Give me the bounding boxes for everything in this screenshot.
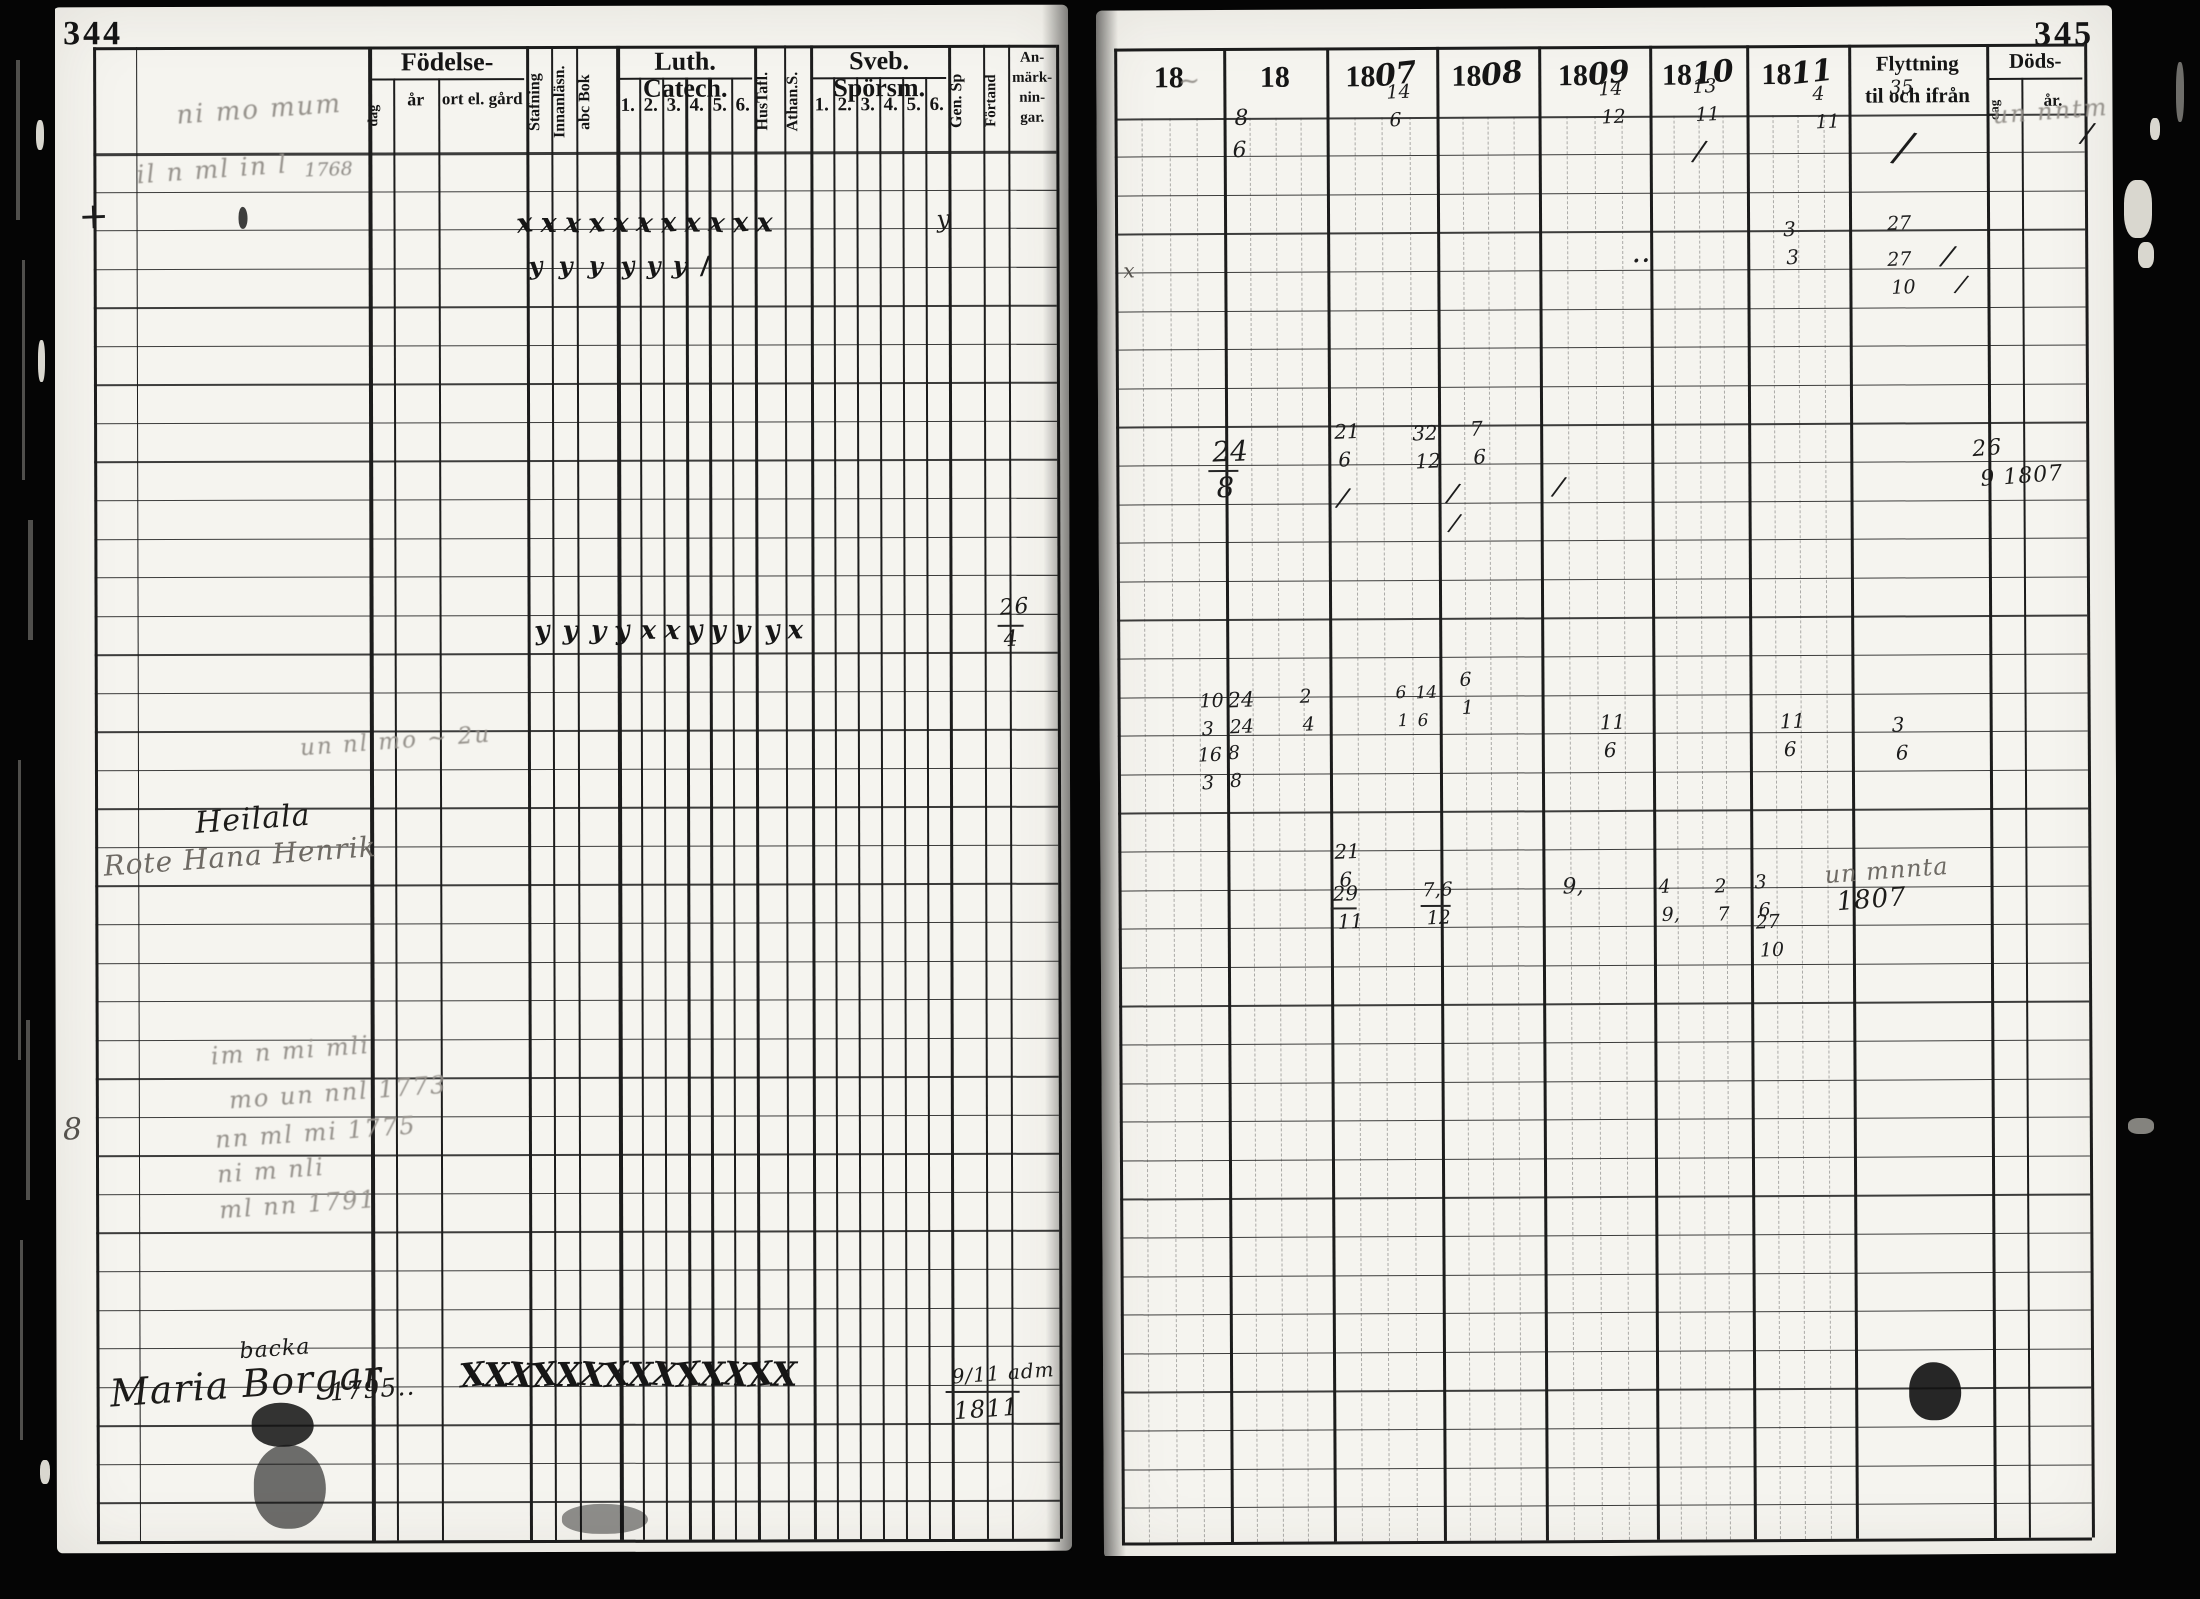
check-mark: x xyxy=(641,618,657,644)
header-col-fortand: Förtand xyxy=(983,51,1008,151)
row-line xyxy=(94,266,1057,270)
check-mark: X xyxy=(746,1356,775,1392)
row-line xyxy=(94,575,1057,579)
year-subcolumn-line xyxy=(1722,115,1730,1539)
header-col-ar: år xyxy=(393,90,438,109)
row-line xyxy=(1120,1232,2090,1238)
header-col-luth-5: 5. xyxy=(708,96,731,116)
row-line xyxy=(1120,1078,2090,1084)
handwritten-mark: 11 xyxy=(1695,105,1720,125)
handwritten-mark: 11 xyxy=(1599,711,1625,732)
row-line xyxy=(1118,692,2088,698)
handwritten-mark: 35 xyxy=(1889,78,1914,98)
row-line xyxy=(96,1076,1059,1080)
header-col-abc-bok: abc Bok xyxy=(576,52,616,152)
row-line xyxy=(95,729,1058,733)
check-mark: x xyxy=(707,209,726,238)
column-line xyxy=(368,46,375,1540)
row-line xyxy=(812,77,946,79)
row-line xyxy=(1119,924,2089,930)
check-mark: x xyxy=(663,617,681,644)
column-line xyxy=(136,47,141,1541)
handwritten-mark: 1807 xyxy=(1836,884,1908,915)
check-mark: y xyxy=(647,254,661,278)
year-header-5: 1809 xyxy=(1538,60,1649,92)
header-flyttning-line2: til och ifrån xyxy=(1848,84,1986,107)
edge-streak xyxy=(22,260,25,480)
handwritten-mark: ni mo mum xyxy=(176,91,343,129)
check-mark: y xyxy=(587,253,603,278)
handwritten-mark: ml nn 1791 xyxy=(218,1187,377,1222)
row-line xyxy=(95,922,1058,926)
column-line xyxy=(833,77,838,1539)
handwritten-mark: 6 xyxy=(1395,685,1407,702)
handwritten-mark: 21 xyxy=(1334,841,1360,862)
year-printed: 18 xyxy=(1558,59,1588,92)
year-header-1: 18 xyxy=(1114,62,1223,94)
year-printed: 18 xyxy=(1761,58,1791,91)
handwritten-mark: y xyxy=(936,207,952,232)
row-line xyxy=(95,652,1058,656)
column-line xyxy=(393,78,398,1540)
row-line xyxy=(1117,615,2087,621)
ink-blot xyxy=(1909,1362,1961,1420)
row-line xyxy=(95,767,1058,771)
handwritten-mark: 27 xyxy=(1887,214,1912,234)
ink-blot xyxy=(562,1504,648,1534)
column-line xyxy=(731,78,736,1540)
year-header-2: 18 xyxy=(1223,61,1326,93)
edge-streak xyxy=(20,1240,23,1440)
book-left-edge xyxy=(0,0,55,1599)
year-subcolumn-line xyxy=(1249,118,1257,1542)
row-line xyxy=(94,498,1057,502)
check-mark: X xyxy=(458,1357,487,1393)
handwritten-mark: / xyxy=(2080,119,2094,148)
year-subcolumn-line xyxy=(1382,117,1390,1541)
row-line xyxy=(94,421,1057,425)
handwritten-mark: / xyxy=(1693,137,1706,166)
row-line xyxy=(1117,576,2087,582)
year-subcolumn-line xyxy=(1772,115,1780,1539)
check-mark: y xyxy=(533,617,551,644)
year-handwritten-suffix: 08 xyxy=(1480,56,1525,92)
row-line xyxy=(1114,43,2084,51)
handwritten-mark: 6 xyxy=(1895,742,1909,762)
row-line xyxy=(97,1500,1060,1504)
check-mark: x xyxy=(541,210,557,237)
row-line xyxy=(1122,1464,2092,1470)
handwritten-mark: x xyxy=(1123,260,1135,280)
handwritten-mark: 6 xyxy=(1338,449,1352,469)
check-mark: x xyxy=(685,210,701,237)
year-printed: 18 xyxy=(1260,61,1290,94)
check-mark: x xyxy=(659,209,678,238)
row-line xyxy=(370,78,524,80)
handwritten-mark: nn ml mi 1775 xyxy=(214,1113,417,1152)
row-line xyxy=(94,536,1057,540)
ink-blot xyxy=(254,1445,326,1529)
check-mark: y xyxy=(711,618,726,644)
check-mark: y xyxy=(671,253,687,278)
handwritten-mark: 14 xyxy=(1415,685,1437,703)
handwritten-mark: 1 xyxy=(1461,698,1474,717)
header-col-luth-1: 1. xyxy=(616,96,639,116)
row-line xyxy=(1120,1194,2090,1200)
handwritten-mark: 8 xyxy=(1234,108,1249,131)
handwritten-mark: 12 xyxy=(1426,908,1451,928)
handwritten-mark: / xyxy=(1449,510,1461,535)
scanned-book-spread: 344 Födelse-Luth. Catech.Sveb. Spörsm.da… xyxy=(0,0,2200,1599)
header-col-hustafl: HusTafl. xyxy=(754,51,784,151)
edge-streak xyxy=(16,60,20,220)
year-subcolumn-line xyxy=(1674,116,1682,1540)
column-line xyxy=(810,45,817,1539)
column-line xyxy=(902,77,907,1539)
year-printed: 18 xyxy=(1451,60,1481,93)
year-subcolumn-line xyxy=(1462,117,1470,1541)
column-line xyxy=(925,77,930,1539)
edge-chip xyxy=(2128,1118,2154,1134)
year-subcolumn-line xyxy=(1513,116,1521,1540)
check-mark: x xyxy=(635,209,654,238)
year-subcolumn-line xyxy=(1823,115,1831,1539)
column-line xyxy=(879,77,884,1539)
row-line xyxy=(1119,1039,2089,1045)
edge-chip xyxy=(2138,242,2154,268)
header-col-dag: dag xyxy=(366,84,395,146)
year-header-4: 1808 xyxy=(1436,60,1538,92)
handwritten-mark: backa xyxy=(239,1336,311,1363)
handwritten-mark: ~ xyxy=(1177,67,1203,95)
column-line xyxy=(856,77,861,1539)
row-line xyxy=(1121,1310,2091,1316)
handwritten-mark: 6 xyxy=(1783,739,1797,759)
handwritten-mark: 3 xyxy=(1783,219,1797,239)
header-col-anmarkningar: gar. xyxy=(1008,111,1056,127)
edge-chip xyxy=(2124,180,2152,238)
handwritten-mark: 24 xyxy=(1227,689,1255,711)
year-subcolumn-line xyxy=(1698,116,1706,1540)
column-line xyxy=(754,45,761,1539)
header-col-sveb-3: 3. xyxy=(856,95,879,115)
handwritten-mark: Rote Hana Henrik xyxy=(103,833,378,881)
check-mark: X xyxy=(772,1357,798,1390)
header-col-luth-2: 2. xyxy=(639,96,662,116)
ink-blot xyxy=(252,1403,314,1447)
year-subcolumn-line xyxy=(1798,115,1806,1539)
edge-chip xyxy=(40,1460,50,1484)
handwritten-mark: / xyxy=(1336,485,1349,512)
handwritten-mark: 32 xyxy=(1412,422,1438,443)
handwritten-mark: 21 xyxy=(1334,421,1360,442)
handwritten-mark: 29 xyxy=(1332,883,1358,904)
handwritten-mark: 3 xyxy=(1202,774,1215,793)
header-col-luth-3: 3. xyxy=(662,96,685,116)
handwritten-mark: 11 xyxy=(1815,112,1840,132)
row-line xyxy=(1115,190,2085,196)
row-line xyxy=(96,1307,1059,1311)
header-col-luth-6: 6. xyxy=(731,95,754,115)
year-subcolumn-line xyxy=(1622,116,1630,1540)
handwritten-mark: .. xyxy=(1631,237,1651,268)
year-subcolumn-line xyxy=(1301,118,1309,1542)
handwritten-mark: 3 xyxy=(1201,720,1214,739)
column-line xyxy=(93,47,100,1541)
row-line xyxy=(97,1423,1060,1427)
handwritten-mark: / xyxy=(1552,474,1565,501)
right-page: 345 181818071808180918101811Flyttningtil… xyxy=(1096,5,2120,1558)
left-page: 344 Födelse-Luth. Catech.Sveb. Spörsm.da… xyxy=(53,5,1072,1554)
year-subcolumn-line xyxy=(1594,116,1602,1540)
handwritten-mark: 12 xyxy=(1415,450,1441,471)
check-mark: X xyxy=(674,1356,703,1392)
header-col-athan-s: Athan.S. xyxy=(784,51,810,151)
handwritten-mark: 6 xyxy=(1473,446,1487,466)
handwritten-mark: 7 xyxy=(1470,418,1484,438)
header-col-innanlasn: Innanläsn. xyxy=(551,52,576,152)
header-col-anmarkningar: An- xyxy=(1008,51,1056,67)
handwritten-mark: ni m nli xyxy=(216,1155,325,1187)
year-subcolumn-line xyxy=(1488,117,1496,1541)
check-mark: x xyxy=(757,209,773,236)
check-mark: y xyxy=(733,617,751,644)
column-line xyxy=(784,45,790,1539)
row-line xyxy=(1121,1271,2091,1277)
edge-streak xyxy=(28,520,33,640)
header-col-ort-el-gard: ort el. gård xyxy=(438,90,526,108)
handwritten-mark: 9, xyxy=(1562,876,1584,899)
column-line xyxy=(576,46,582,1540)
header-col-sveb-4: 4. xyxy=(879,95,902,115)
handwritten-mark: 6 xyxy=(1417,713,1429,730)
row-line xyxy=(1115,113,2085,120)
handwritten-mark: 11 xyxy=(1337,911,1363,932)
handwritten-mark: 2 xyxy=(1714,877,1727,896)
handwritten-mark: 4 xyxy=(1302,715,1315,734)
row-line xyxy=(1119,1001,2089,1007)
handwritten-mark: 1 xyxy=(1397,713,1409,730)
row-line xyxy=(95,883,1058,887)
row-line xyxy=(1116,345,2086,351)
year-subcolumn-line xyxy=(1354,117,1362,1541)
edge-streak xyxy=(26,1020,30,1200)
header-dods: Döds- xyxy=(1986,49,2084,72)
handwritten-mark: 4 xyxy=(1658,877,1671,896)
handwritten-mark: Heilala xyxy=(194,801,311,839)
handwritten-mark: 3 xyxy=(1786,247,1800,267)
row-line xyxy=(96,1269,1059,1273)
column-line xyxy=(983,45,989,1539)
column-line xyxy=(1008,45,1014,1539)
year-header-7: 1811 xyxy=(1746,59,1848,91)
year-subcolumn-line xyxy=(1275,118,1283,1542)
header-col-gen-sp: Gen. Sp xyxy=(948,51,983,151)
row-line xyxy=(93,189,1056,193)
handwritten-mark: 4 xyxy=(1812,85,1825,104)
handwritten-mark: 7 xyxy=(1717,905,1730,924)
column-line xyxy=(948,45,955,1539)
handwritten-mark: 14 xyxy=(1386,83,1411,103)
handwritten-mark: + xyxy=(78,199,110,236)
handwritten-mark: 9 1807 xyxy=(1980,463,2064,491)
check-mark: y xyxy=(686,617,704,644)
row-line xyxy=(95,690,1058,694)
row-line xyxy=(618,78,752,80)
check-mark: X xyxy=(602,1357,631,1393)
header-col-anmarkningar: märk- xyxy=(1008,71,1056,87)
year-subcolumn-line xyxy=(1409,117,1417,1541)
edge-chip xyxy=(36,120,44,150)
row-line xyxy=(96,1114,1059,1118)
year-subcolumn-line xyxy=(1169,118,1177,1542)
handwritten-mark: 13 xyxy=(1692,77,1717,97)
edge-chip xyxy=(2176,62,2184,122)
check-mark: y xyxy=(619,253,635,278)
row-line xyxy=(1118,808,2088,814)
check-mark: y xyxy=(613,617,631,644)
row-line xyxy=(1121,1425,2091,1431)
row-line xyxy=(1115,152,2085,158)
year-subcolumn-line xyxy=(1142,118,1150,1542)
handwritten-mark: 10 xyxy=(1891,278,1916,298)
handwritten-mark: 10 xyxy=(1760,941,1785,961)
header-group-luth-catech: Luth. Catech. xyxy=(616,47,754,102)
header-col-anmarkningar: nin- xyxy=(1008,91,1056,107)
handwritten-mark: im n mi mli xyxy=(210,1033,371,1068)
row-line xyxy=(1117,499,2087,505)
edge-streak xyxy=(18,760,21,1060)
row-line xyxy=(96,1230,1059,1234)
handwritten-mark: / xyxy=(1941,242,1956,271)
header-group-fodelse: Födelse- xyxy=(368,48,526,76)
header-col-sveb-6: 6. xyxy=(925,95,948,115)
check-mark: x xyxy=(587,209,606,238)
check-mark: y xyxy=(559,254,573,278)
handwritten-mark: / xyxy=(1955,272,1968,297)
row-line xyxy=(1116,383,2086,389)
row-line xyxy=(94,382,1057,386)
handwritten-mark: 27 xyxy=(1887,250,1912,270)
handwritten-mark: 3 xyxy=(1891,714,1905,734)
handwritten-mark: 16 xyxy=(1197,746,1222,766)
column-line xyxy=(2084,43,2095,1537)
handwritten-mark: 8 xyxy=(62,1115,82,1146)
row-line xyxy=(1117,653,2087,659)
handwritten-mark: 8 xyxy=(1216,474,1235,503)
header-group-sveb-sporsm: Sveb. Spörsm. xyxy=(810,47,948,102)
row-line xyxy=(97,1461,1060,1465)
year-header-3: 1807 xyxy=(1326,61,1436,93)
row-line xyxy=(96,1153,1059,1157)
column-line xyxy=(662,78,667,1540)
check-mark: X xyxy=(530,1357,559,1393)
header-flyttning-line1: Flyttning xyxy=(1848,52,1986,75)
year-printed: 18 xyxy=(1345,60,1375,93)
handwritten-mark: 11 xyxy=(1779,711,1805,732)
column-line xyxy=(551,46,557,1540)
row-line xyxy=(1116,306,2086,312)
year-printed: 18 xyxy=(1662,59,1692,92)
row-line xyxy=(1121,1348,2091,1354)
check-mark: x xyxy=(613,210,629,237)
edge-chip xyxy=(38,340,45,382)
edge-chip xyxy=(2150,118,2160,140)
row-line xyxy=(1122,1503,2092,1509)
row-line xyxy=(1119,885,2089,891)
row-line xyxy=(1120,1117,2090,1123)
ink-blot xyxy=(239,207,248,229)
header-col-sveb-5: 5. xyxy=(902,95,925,115)
row-line xyxy=(1988,78,2082,80)
row-line xyxy=(1117,538,2087,544)
row-line xyxy=(94,459,1057,463)
check-mark: x xyxy=(515,209,534,238)
handwritten-mark: 12 xyxy=(1601,107,1626,127)
row-line xyxy=(1120,1155,2090,1161)
handwritten-mark: 24 xyxy=(1229,717,1254,737)
header-col-stafning: Stafning xyxy=(526,52,551,152)
column-line xyxy=(685,78,691,1540)
handwritten-mark: 3 xyxy=(1754,873,1767,892)
scan-bottom-edge xyxy=(0,1556,2200,1599)
handwritten-mark: / xyxy=(1893,125,1915,169)
row-line xyxy=(95,960,1058,964)
handwritten-mark: 26 xyxy=(999,596,1031,620)
check-mark: x xyxy=(563,209,582,238)
book-right-edge xyxy=(2116,0,2200,1599)
handwritten-mark: 4 xyxy=(1003,628,1020,651)
row-line xyxy=(94,343,1057,347)
handwritten-mark: il n ml in l xyxy=(136,151,289,187)
row-line xyxy=(1119,962,2089,968)
handwritten-mark: 10 xyxy=(1199,692,1224,712)
row-line xyxy=(1122,1537,2092,1545)
header-col-sveb-1: 1. xyxy=(810,95,833,115)
handwritten-mark: un mnnta xyxy=(1824,854,1950,887)
handwritten-mark: 1811 xyxy=(953,1395,1020,1424)
year-subcolumn-line xyxy=(1566,116,1574,1540)
handwritten-mark: 6 xyxy=(1232,140,1247,163)
handwritten-mark: 14 xyxy=(1598,79,1623,99)
handwritten-mark: 6 xyxy=(1459,671,1472,690)
handwritten-mark: 24 xyxy=(1212,437,1249,466)
column-line xyxy=(639,78,644,1540)
handwritten-mark: 26 xyxy=(1971,437,2003,461)
row-line xyxy=(96,999,1059,1003)
handwritten-mark: 7,6 xyxy=(1422,880,1453,900)
year-subcolumn-line xyxy=(1196,118,1204,1542)
header-col-sveb-2: 2. xyxy=(833,95,856,115)
check-mark: y xyxy=(527,253,543,278)
row-line xyxy=(1116,422,2086,428)
column-line xyxy=(708,78,714,1540)
row-line xyxy=(1118,769,2088,775)
handwritten-mark: 2 xyxy=(1299,687,1312,706)
handwritten-mark: 8 xyxy=(1230,772,1243,791)
handwritten-mark: 6 xyxy=(1389,111,1402,130)
check-mark: x xyxy=(788,617,804,643)
row-line xyxy=(1115,229,2085,235)
handwritten-mark: 6 xyxy=(1603,740,1617,760)
handwritten-mark: 9, xyxy=(1661,905,1680,925)
column-line xyxy=(1056,45,1063,1539)
handwritten-mark: 8 xyxy=(1227,744,1240,763)
check-mark: y xyxy=(563,618,578,644)
handwritten-mark: 9/11 adm xyxy=(951,1359,1055,1386)
check-mark: x xyxy=(731,209,750,238)
handwritten-mark: 1795.. xyxy=(329,1373,416,1404)
